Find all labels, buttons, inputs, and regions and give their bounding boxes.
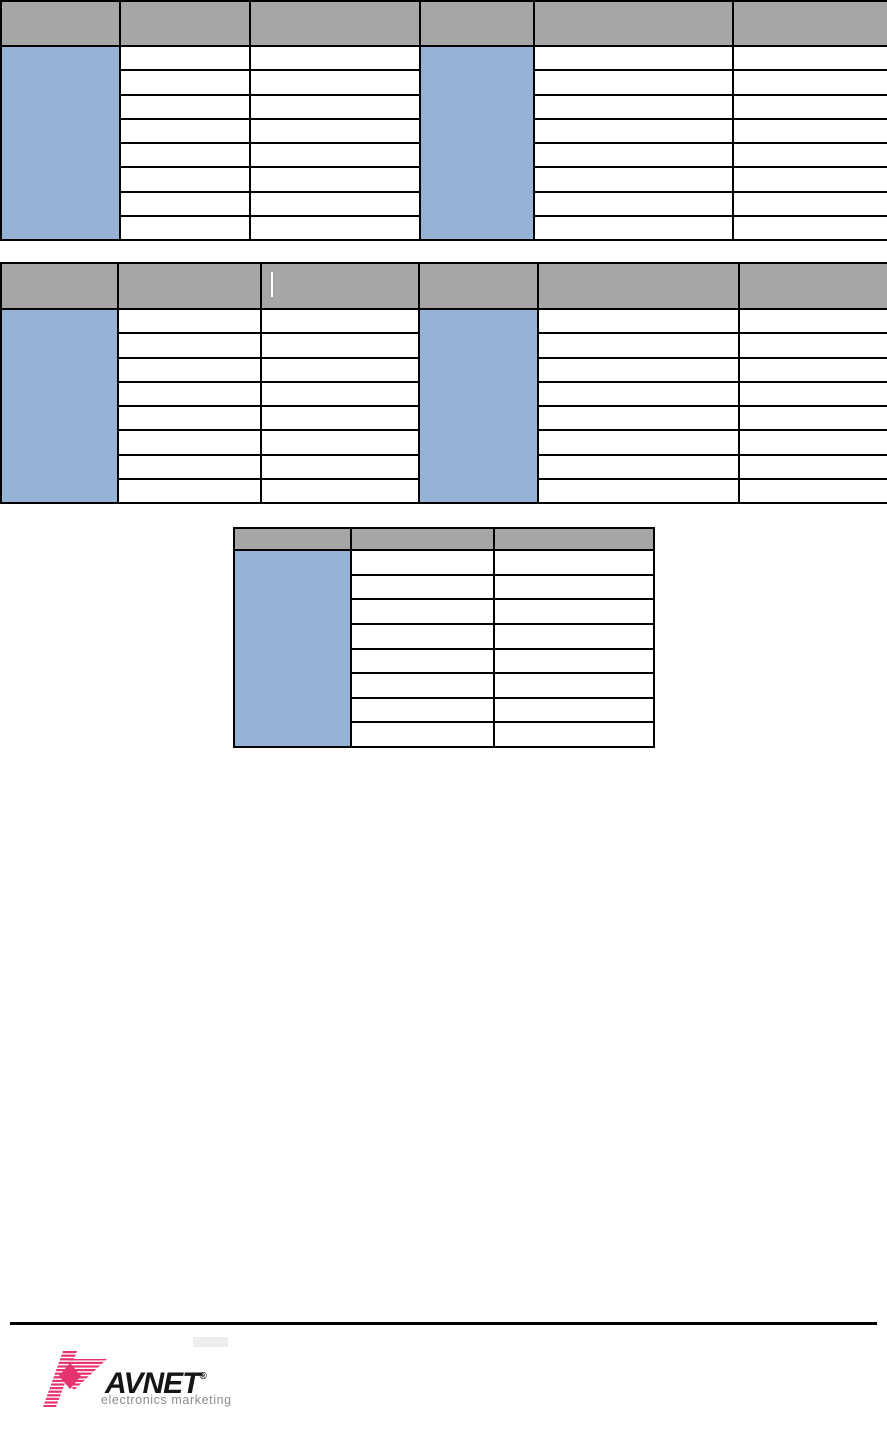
table-2-right-header-cell-1[interactable]	[419, 263, 538, 309]
table-3-cell-r1-c2[interactable]	[351, 550, 494, 575]
table-2-left	[0, 262, 420, 504]
table-2-left-cell-r5-c2[interactable]	[118, 406, 261, 430]
table-1-right-cell-r5-c3[interactable]	[733, 143, 887, 167]
table-2-left-cell-r2-c3[interactable]	[261, 333, 419, 357]
table-2-right-cell-r8-c2[interactable]	[538, 479, 739, 503]
table-2-right-cell-r4-c3[interactable]	[739, 382, 887, 406]
table-2-right-cell-r7-c3[interactable]	[739, 455, 887, 479]
table-2-right	[418, 262, 887, 504]
table-2-right-cell-r6-c2[interactable]	[538, 430, 739, 454]
table-3-header-cell-1[interactable]	[234, 528, 351, 550]
table-2-right-header-cell-2[interactable]	[538, 263, 739, 309]
table-2-right-cell-r2-c3[interactable]	[739, 333, 887, 357]
table-1-right-cell-r4-c2[interactable]	[534, 119, 733, 143]
table-3-cell-r6-c3[interactable]	[494, 673, 654, 698]
table-3-cell-r8-c2[interactable]	[351, 722, 494, 747]
table-1-right-header-cell-3[interactable]	[733, 1, 887, 46]
table-2-right-category-cell[interactable]	[419, 309, 538, 503]
table-1-left-cell-r3-c3[interactable]	[250, 95, 420, 119]
table-1-left-cell-r5-c2[interactable]	[120, 143, 250, 167]
table-3-header-cell-2[interactable]	[351, 528, 494, 550]
table-2-left-cell-r7-c3[interactable]	[261, 455, 419, 479]
table-1-left-cell-r6-c2[interactable]	[120, 167, 250, 191]
brand-tagline: electronics marketing	[101, 1393, 232, 1407]
table-3-host	[233, 527, 655, 748]
table-2-right-cell-r1-c3[interactable]	[739, 309, 887, 333]
table-1-left-cell-r1-c2[interactable]	[120, 46, 250, 70]
table-2-right-cell-r1-c2[interactable]	[538, 309, 739, 333]
table-1-right-cell-r5-c2[interactable]	[534, 143, 733, 167]
table-1-right-cell-r2-c2[interactable]	[534, 70, 733, 94]
table-1-right-cell-r1-c3[interactable]	[733, 46, 887, 70]
table-2-left-cell-r5-c3[interactable]	[261, 406, 419, 430]
table-2-left-host	[0, 262, 420, 504]
table-2-right-cell-r5-c3[interactable]	[739, 406, 887, 430]
table-1-right-cell-r3-c3[interactable]	[733, 95, 887, 119]
table-1-right-cell-r8-c2[interactable]	[534, 216, 733, 240]
table-2-left-cell-r3-c2[interactable]	[118, 358, 261, 382]
table-3-cell-r5-c2[interactable]	[351, 649, 494, 674]
table-1-right-cell-r3-c2[interactable]	[534, 95, 733, 119]
registered-mark-icon: ®	[199, 1371, 206, 1382]
table-3-cell-r6-c2[interactable]	[351, 673, 494, 698]
table-2-right-cell-r4-c2[interactable]	[538, 382, 739, 406]
table-3-header-cell-3[interactable]	[494, 528, 654, 550]
table-3-cell-r8-c3[interactable]	[494, 722, 654, 747]
table-2-right-cell-r5-c2[interactable]	[538, 406, 739, 430]
table-1-left-cell-r7-c3[interactable]	[250, 192, 420, 216]
table-3-cell-r3-c3[interactable]	[494, 599, 654, 624]
table-1-right-cell-r6-c3[interactable]	[733, 167, 887, 191]
table-3-cell-r2-c2[interactable]	[351, 575, 494, 600]
table-2-left-category-cell[interactable]	[1, 309, 118, 503]
table-2-left-header-cell-2[interactable]	[118, 263, 261, 309]
table-3-category-cell[interactable]	[234, 550, 351, 747]
table-2-right-cell-r8-c3[interactable]	[739, 479, 887, 503]
avnet-a-icon	[43, 1351, 107, 1409]
table-1-right-cell-r4-c3[interactable]	[733, 119, 887, 143]
table-1-left-cell-r6-c3[interactable]	[250, 167, 420, 191]
table-2-left-cell-r8-c3[interactable]	[261, 479, 419, 503]
table-1-left-host	[0, 0, 421, 241]
table-3-cell-r4-c3[interactable]	[494, 624, 654, 649]
table-1-left-cell-r4-c3[interactable]	[250, 119, 420, 143]
table-1-left-cell-r1-c3[interactable]	[250, 46, 420, 70]
table-3-cell-r7-c3[interactable]	[494, 698, 654, 723]
table-2-left-cell-r1-c2[interactable]	[118, 309, 261, 333]
footer-rule	[10, 1322, 877, 1325]
table-2-right-host	[418, 262, 887, 504]
table-3-cell-r1-c3[interactable]	[494, 550, 654, 575]
table-2-left-cell-r8-c2[interactable]	[118, 479, 261, 503]
table-2-left-cell-r3-c3[interactable]	[261, 358, 419, 382]
table-2-left-cell-r6-c3[interactable]	[261, 430, 419, 454]
table-2-left-cell-r2-c2[interactable]	[118, 333, 261, 357]
table-1-right-header-cell-2[interactable]	[534, 1, 733, 46]
table-2-left-cell-r4-c2[interactable]	[118, 382, 261, 406]
table-2-left-header-cell-1[interactable]	[1, 263, 118, 309]
table-2-right-cell-r3-c2[interactable]	[538, 358, 739, 382]
table-3-cell-r2-c3[interactable]	[494, 575, 654, 600]
table-2-left-header-cell-3[interactable]	[261, 263, 419, 309]
table-1-left-cell-r5-c3[interactable]	[250, 143, 420, 167]
table-1-right-cell-r1-c2[interactable]	[534, 46, 733, 70]
table-1-right-cell-r7-c3[interactable]	[733, 192, 887, 216]
table-1-left-cell-r3-c2[interactable]	[120, 95, 250, 119]
table-1-right-cell-r6-c2[interactable]	[534, 167, 733, 191]
table-1-left-cell-r7-c2[interactable]	[120, 192, 250, 216]
table-1-right-header-cell-1[interactable]	[420, 1, 534, 46]
table-1-left-cell-r2-c3[interactable]	[250, 70, 420, 94]
table-1-left-cell-r2-c2[interactable]	[120, 70, 250, 94]
text-cursor	[271, 272, 273, 297]
table-3-cell-r3-c2[interactable]	[351, 599, 494, 624]
table-2-right-header-cell-3[interactable]	[739, 263, 887, 309]
table-2-left-cell-r6-c2[interactable]	[118, 430, 261, 454]
table-2-left-cell-r4-c3[interactable]	[261, 382, 419, 406]
table-2-left-cell-r1-c3[interactable]	[261, 309, 419, 333]
table-3-cell-r4-c2[interactable]	[351, 624, 494, 649]
table-1-right-cell-r2-c3[interactable]	[733, 70, 887, 94]
table-2-right-cell-r7-c2[interactable]	[538, 455, 739, 479]
document-page: { "page": { "width": 887, "height": 1444…	[0, 0, 887, 1444]
table-2-left-cell-r7-c2[interactable]	[118, 455, 261, 479]
avnet-logo: AVNET® electronics marketing	[38, 1335, 233, 1425]
table-1-left-header-cell-2[interactable]	[120, 1, 250, 46]
table-1-right-category-cell[interactable]	[420, 46, 534, 240]
table-3-cell-r5-c3[interactable]	[494, 649, 654, 674]
table-1-right-cell-r7-c2[interactable]	[534, 192, 733, 216]
table-1-left-header-cell-1[interactable]	[1, 1, 120, 46]
table-1-left	[0, 0, 421, 241]
table-1-left-header-cell-3[interactable]	[250, 1, 420, 46]
table-1-right-host	[419, 0, 887, 241]
table-1-left-cell-r4-c2[interactable]	[120, 119, 250, 143]
logo-image-edge	[193, 1337, 228, 1347]
table-2-right-cell-r2-c2[interactable]	[538, 333, 739, 357]
table-1-left-cell-r8-c2[interactable]	[120, 216, 250, 240]
table-3	[233, 527, 655, 748]
table-3-cell-r7-c2[interactable]	[351, 698, 494, 723]
table-2-right-cell-r6-c3[interactable]	[739, 430, 887, 454]
table-1-right	[419, 0, 887, 241]
table-1-left-category-cell[interactable]	[1, 46, 120, 240]
table-1-left-cell-r8-c3[interactable]	[250, 216, 420, 240]
table-2-right-cell-r3-c3[interactable]	[739, 358, 887, 382]
table-1-right-cell-r8-c3[interactable]	[733, 216, 887, 240]
